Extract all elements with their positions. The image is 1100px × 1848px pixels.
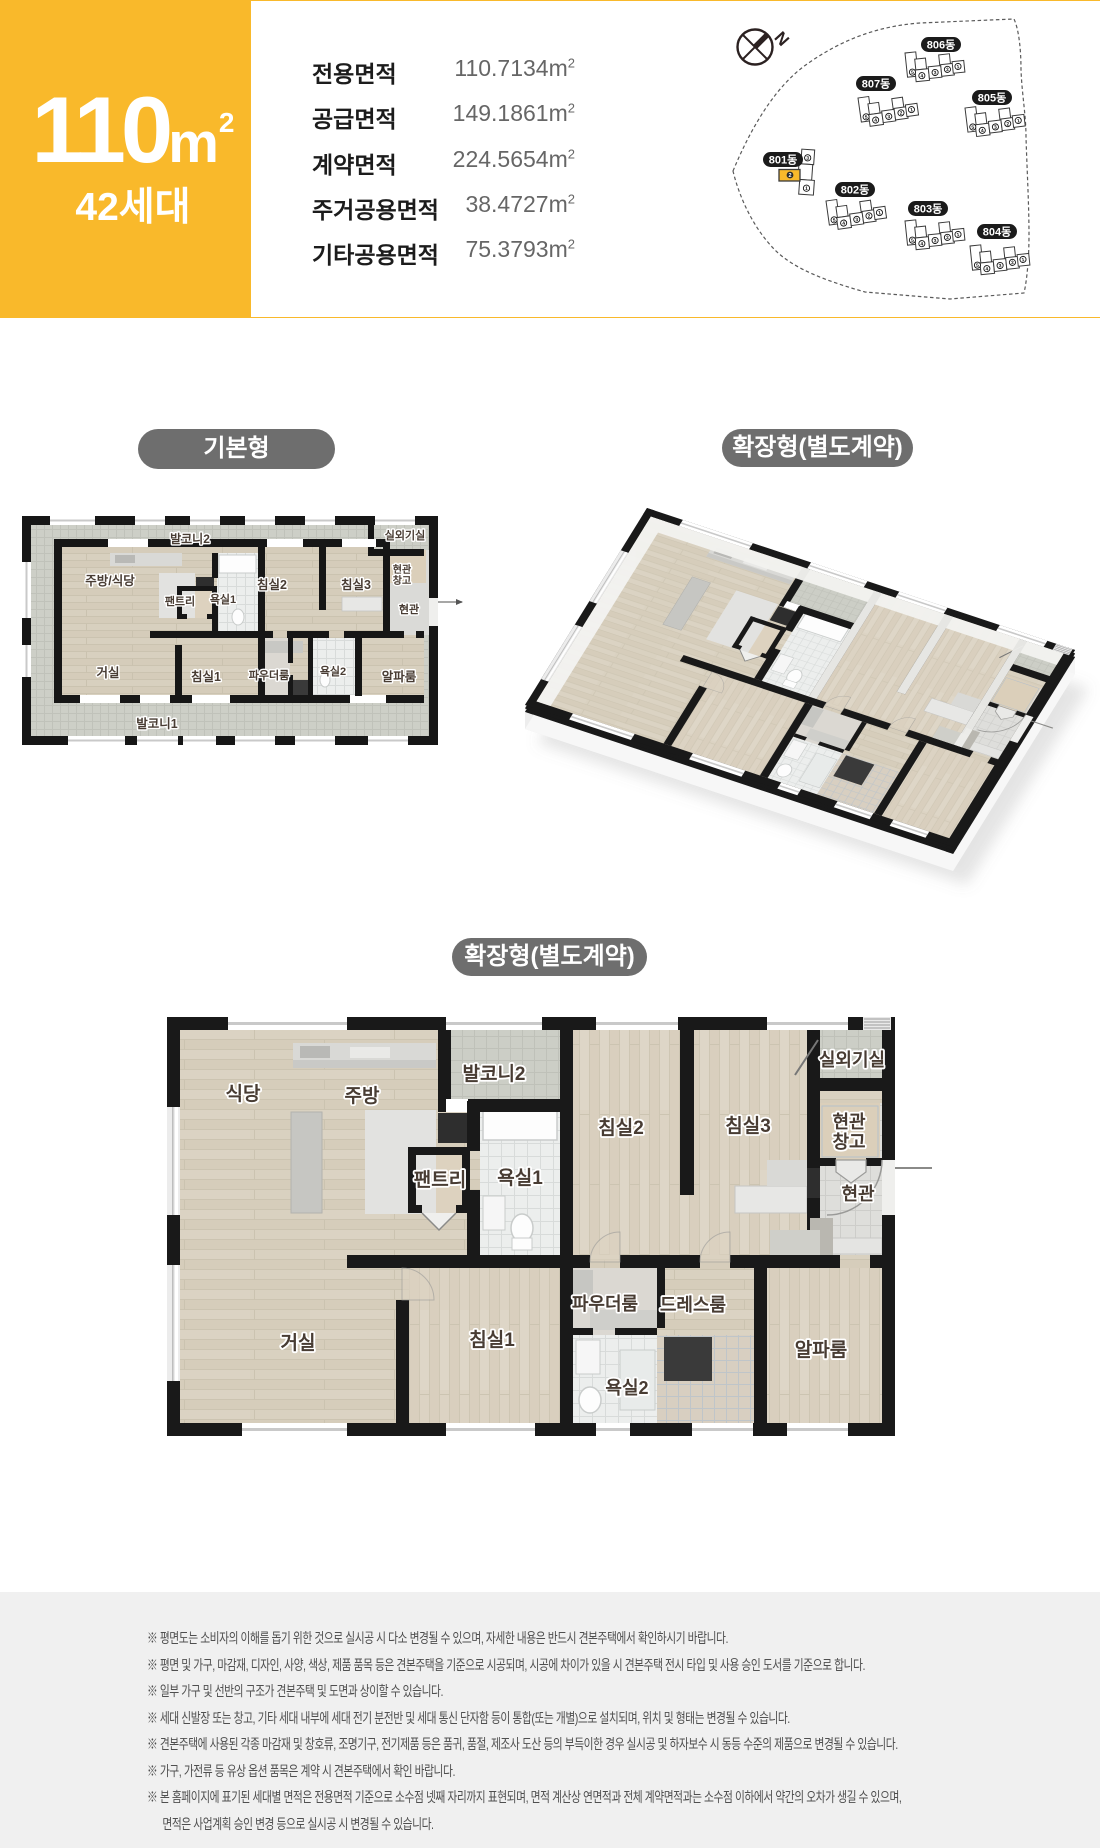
svg-text:침실3: 침실3 bbox=[725, 1115, 771, 1137]
svg-text:주방/식당: 주방/식당 bbox=[85, 573, 135, 588]
svg-text:욕실2: 욕실2 bbox=[605, 1378, 648, 1398]
svg-text:침실2: 침실2 bbox=[598, 1117, 644, 1139]
svg-text:실외기실: 실외기실 bbox=[385, 528, 425, 542]
svg-text:현관: 현관 bbox=[393, 563, 412, 576]
svg-text:805동: 805동 bbox=[978, 92, 1006, 105]
svg-text:802동: 802동 bbox=[841, 184, 869, 197]
svg-text:2: 2 bbox=[788, 173, 791, 179]
svg-text:거실: 거실 bbox=[281, 1332, 316, 1354]
svg-text:침실1: 침실1 bbox=[469, 1329, 515, 1351]
svg-text:침실2: 침실2 bbox=[257, 577, 287, 592]
svg-text:주방: 주방 bbox=[345, 1085, 380, 1107]
svg-text:침실3: 침실3 bbox=[341, 577, 371, 592]
svg-text:드레스룸: 드레스룸 bbox=[660, 1295, 726, 1315]
svg-text:N: N bbox=[771, 28, 793, 50]
svg-text:침실1: 침실1 bbox=[191, 669, 221, 684]
svg-text:발코니2: 발코니2 bbox=[462, 1063, 525, 1085]
svg-text:현관: 현관 bbox=[399, 602, 419, 616]
svg-text:욕실1: 욕실1 bbox=[210, 592, 236, 606]
svg-text:욕실1: 욕실1 bbox=[497, 1167, 543, 1189]
svg-text:창고: 창고 bbox=[393, 574, 411, 587]
svg-text:팬트리: 팬트리 bbox=[165, 594, 195, 608]
svg-text:알파룸: 알파룸 bbox=[382, 669, 417, 684]
svg-text:현관: 현관 bbox=[832, 1112, 866, 1132]
svg-text:알파룸: 알파룸 bbox=[795, 1339, 847, 1361]
svg-text:현관: 현관 bbox=[841, 1184, 875, 1204]
svg-text:807동: 807동 bbox=[862, 78, 890, 91]
svg-text:파우더룸: 파우더룸 bbox=[249, 668, 289, 682]
svg-text:발코니2: 발코니2 bbox=[170, 531, 210, 546]
svg-text:거실: 거실 bbox=[96, 665, 119, 680]
svg-text:욕실2: 욕실2 bbox=[320, 664, 346, 678]
svg-text:발코니1: 발코니1 bbox=[136, 716, 178, 731]
svg-text:806동: 806동 bbox=[927, 39, 955, 52]
svg-text:실외기실: 실외기실 bbox=[819, 1050, 885, 1070]
svg-text:803동: 803동 bbox=[914, 203, 942, 216]
svg-text:창고: 창고 bbox=[832, 1132, 865, 1152]
svg-text:팬트리: 팬트리 bbox=[414, 1169, 466, 1191]
svg-text:801동: 801동 bbox=[769, 154, 797, 167]
svg-text:804동: 804동 bbox=[983, 226, 1011, 239]
svg-text:식당: 식당 bbox=[226, 1083, 261, 1105]
svg-text:파우더룸: 파우더룸 bbox=[572, 1294, 638, 1314]
